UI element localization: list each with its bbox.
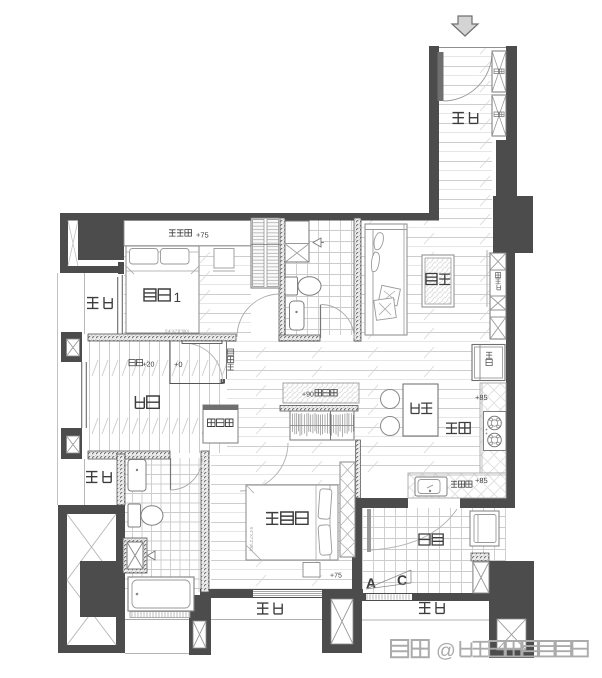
svg-text:5'4"X7'8"(80): 5'4"X7'8"(80)	[165, 329, 190, 334]
svg-text:+85: +85	[475, 476, 488, 485]
svg-text:+0: +0	[174, 360, 183, 369]
svg-text:+20: +20	[143, 362, 155, 369]
svg-text:C: C	[397, 572, 407, 588]
svg-text:+90: +90	[302, 391, 314, 398]
svg-text:+75: +75	[330, 573, 342, 580]
svg-text:@: @	[436, 640, 456, 662]
svg-text:5'4"X7'2"(80): 5'4"X7'2"(80)	[249, 527, 254, 552]
svg-text:+85: +85	[475, 393, 488, 402]
svg-text:1: 1	[174, 290, 182, 305]
svg-text:+75: +75	[196, 231, 209, 240]
